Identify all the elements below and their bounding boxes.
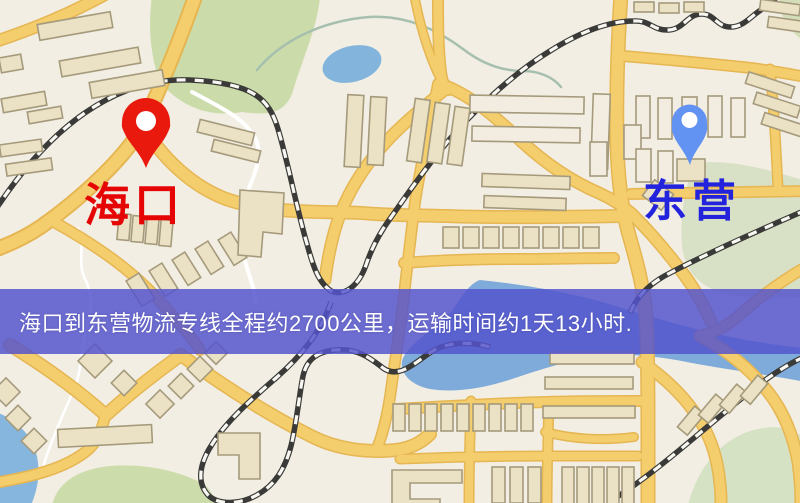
origin-city-label: 海口 — [84, 182, 184, 228]
route-info-banner: 海口到东营物流专线全程约2700公里，运输时间约1天13小时. — [0, 289, 800, 354]
route-info-text: 海口到东营物流专线全程约2700公里，运输时间约1天13小时. — [19, 306, 632, 338]
map-canvas[interactable] — [0, 0, 800, 503]
destination-city-label: 东营 — [643, 180, 741, 224]
map-screenshot: 海口 东营 海口到东营物流专线全程约2700公里，运输时间约1天13小时. — [0, 0, 800, 503]
